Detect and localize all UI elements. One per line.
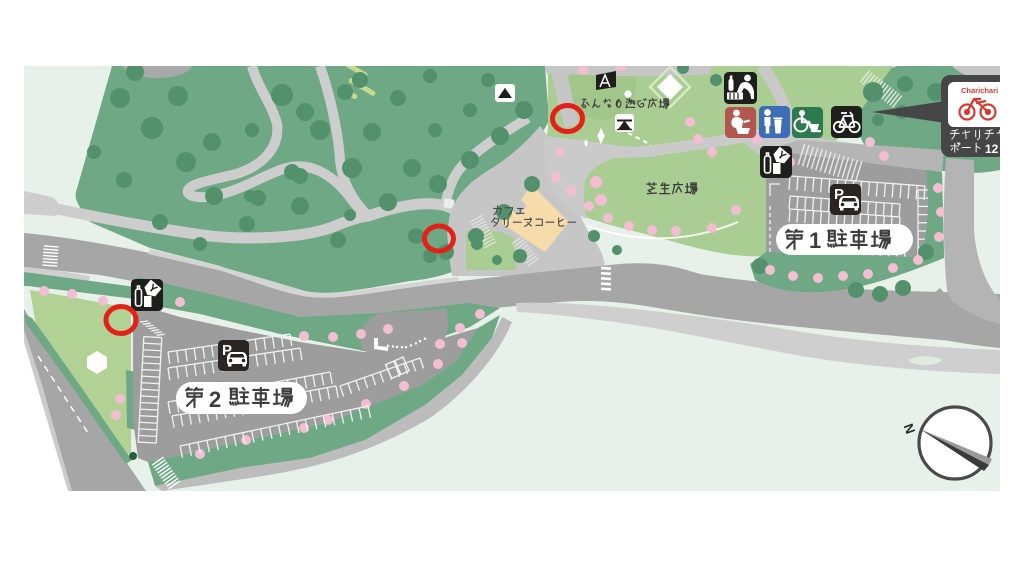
svg-text:1: 1 bbox=[809, 228, 821, 253]
svg-text:Charichari: Charichari bbox=[961, 86, 998, 95]
svg-text:12: 12 bbox=[985, 142, 999, 156]
svg-text:2: 2 bbox=[209, 387, 221, 412]
